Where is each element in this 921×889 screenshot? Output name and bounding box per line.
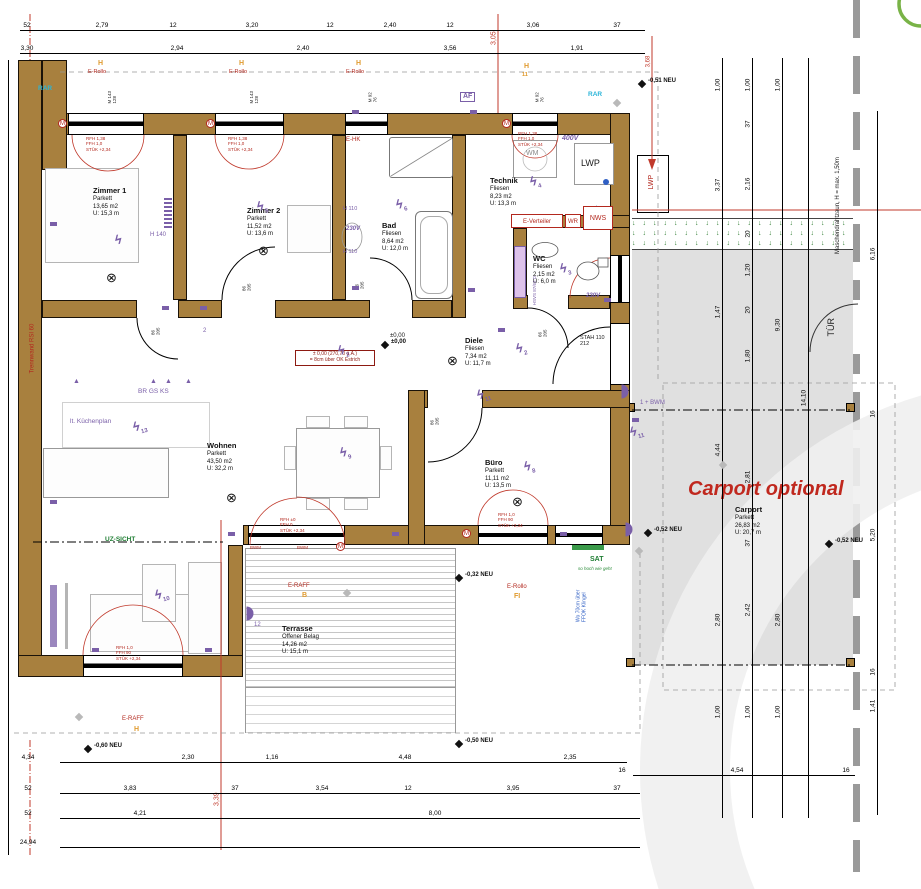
annotation-wo-70cm-ber-ffok-klingel: Wo 70cm über FFOK Klingel [576, 590, 588, 622]
room-name: Büro [485, 458, 511, 468]
annotation-2: 2 [203, 328, 206, 335]
room-name: Diele [465, 336, 491, 346]
level-value: -0,32 NEU [465, 572, 493, 578]
dim-label: 16 [870, 668, 877, 675]
dim-label: 37 [613, 785, 620, 792]
annotation-m: M [336, 542, 345, 551]
dim-label: 3,06 [527, 22, 540, 29]
ceiling-light-icon: ⊗ [258, 243, 269, 259]
annotation-rfh-0-ffh-0-st-k-2-34: RFH ±0 FFH 0 STÜK +2,34 [280, 517, 305, 533]
annotation-3-68: 3,68 [645, 56, 652, 68]
annotation-br-gs-ks: BR GS KS [138, 388, 169, 396]
annotation-m-143-128: M 143 128 [107, 91, 118, 104]
room-label: BüroParkett 11,11 m2 U: 13,5 m [485, 458, 511, 491]
dim-label: 12 [169, 22, 176, 29]
socket-icon [228, 532, 235, 536]
dim-label: 12 [326, 22, 333, 29]
dim-label: 1,91 [571, 45, 584, 52]
dim-label: 24,94 [20, 839, 36, 846]
dim-label: 3,54 [316, 785, 329, 792]
dim-label: 2,40 [384, 22, 397, 29]
dim-label: 3,83 [124, 785, 137, 792]
ceiling-light-icon: ⊗ [226, 490, 237, 506]
dim-line [782, 58, 783, 818]
ceiling-device-icon: ▲ [73, 378, 80, 385]
annotation--0-00-270-70-a-8cm-ber-o: ± 0,00 (270,70 ü.A.) = 8cm über OK Estri… [295, 350, 375, 366]
annotation-h: H [134, 726, 139, 734]
ceiling-light-icon: ⊗ [106, 270, 117, 286]
dim-label: 20 [745, 230, 752, 237]
dim-label: 16 [842, 767, 849, 774]
dim-label: 2,42 [745, 604, 752, 617]
dim-label: 12 [404, 785, 411, 792]
annotation-rar: RAR [38, 85, 52, 93]
annotation-e-raff: E-RAFF [122, 716, 144, 723]
logo-arc [899, 0, 921, 26]
dim-line [752, 58, 753, 818]
socket-icon [92, 648, 99, 652]
annotation-230v: 230V [346, 226, 360, 233]
level-value: -0,50 NEU [465, 738, 493, 744]
annotation-rfh-1-38-ffh-1-0-st-k-2-: RFH 1,38 FFH 1,0 STÜK +2,34 [228, 136, 253, 152]
dim-label: 6,16 [870, 248, 877, 261]
annotation-h: H [98, 60, 103, 68]
socket-icon [632, 418, 639, 422]
socket-icon [200, 306, 207, 310]
annotation-e-rollo: E-Rollo [346, 69, 364, 75]
dim-label: 3,95 [507, 785, 520, 792]
ceiling-device-icon: ▲ [185, 378, 192, 385]
door-arc-zimmer1 [137, 318, 178, 359]
dim-label: 2,81 [745, 471, 752, 484]
socket-icon [50, 222, 57, 226]
room-label: DieleFliesen 7,34 m2 U: 11,7 m [465, 336, 491, 369]
level-value: -0,51 NEU [648, 78, 676, 84]
dim-label: 52 [24, 785, 31, 792]
room-label: TerrasseOffener Belag 14,26 m2 U: 15,1 m [282, 624, 319, 657]
dim-label: 20 [745, 306, 752, 313]
dim-label: 4,44 [715, 444, 722, 457]
annotation-af: AF [460, 92, 475, 102]
annotation-400v: 400V [562, 135, 578, 143]
annotation-e-hk: E-HK [346, 137, 360, 144]
dim-label: 1,80 [745, 350, 752, 363]
dim-label: 4,34 [22, 754, 35, 761]
annotation-m-92-76: M 92 76 [368, 92, 379, 102]
ceiling-device-icon: ▲ [150, 378, 157, 385]
dim-label: 1,47 [715, 306, 722, 319]
annotation-bwm: BWM [297, 545, 308, 550]
annotation-e-verteiler: E-Verteiler [511, 214, 563, 228]
dim-label: 1,20 [745, 264, 752, 277]
annotation-wm: WM [526, 150, 538, 158]
annotation-3-39: 3,39 [214, 792, 222, 806]
dim-label: 5,20 [870, 529, 877, 542]
dim-label: 1,00 [715, 79, 722, 92]
socket-icon [604, 298, 611, 302]
annotation-uz-sicht: UZ-SICHT [105, 536, 135, 544]
dim-label: 14,10 [801, 390, 808, 406]
ceiling-light-icon: ⊗ [512, 494, 523, 510]
dim-label: 52 [24, 810, 31, 817]
dim-label: 16 [618, 767, 625, 774]
dim-label: 37 [745, 120, 752, 127]
annotation-fi: FI [514, 593, 520, 601]
door-arc-wc [528, 308, 568, 348]
room-label: Zimmer 1Parkett 13,65 m2 U: 15,3 m [93, 186, 126, 219]
dim-label: 3,56 [444, 45, 457, 52]
door-arc-bad [370, 258, 412, 300]
dim-label: 9,30 [775, 319, 782, 332]
dim-label: 2,16 [745, 178, 752, 191]
room-name: Technik [490, 176, 518, 186]
dim-label: 1,00 [775, 79, 782, 92]
annotation-66-205: 66 205 [537, 330, 548, 338]
annotation-hsvs-87-63-d: HSVS 87/63 D [532, 276, 537, 305]
dim-line [20, 53, 645, 54]
level-value: -0,60 NEU [94, 743, 122, 749]
dim-label: 2,40 [297, 45, 310, 52]
annotation-e-rollo: E-Rollo [507, 584, 527, 591]
room-name: WC [533, 254, 556, 264]
room-name: Zimmer 1 [93, 186, 126, 196]
annotation-h-110: H 110 [343, 249, 357, 255]
room-label: BadFliesen 8,64 m2 U: 12,0 m [382, 221, 408, 254]
dim-label: 52 [23, 22, 30, 29]
dim-label: 16 [870, 410, 877, 417]
dim-line [808, 58, 809, 818]
annotation-e-rollo: E-Rollo [88, 69, 106, 75]
room-label: TechnikFliesen 8,23 m2 U: 13,3 m [490, 176, 518, 209]
annotation-maschendrahtzaun-h-max-1: Maschendrahtzaun, H = max. 1,50m [835, 157, 842, 254]
dim-label: 37 [745, 539, 752, 546]
socket-icon [468, 288, 475, 292]
dim-label: 1,00 [715, 706, 722, 719]
annotation-stah-110-212: STAH 110 212 [580, 335, 605, 348]
annotation-b: B [302, 592, 307, 600]
annotation-rfh-1-38-ffh-1-0-st-k-2-: RFH 1,38 FFH 1,0 STÜK +2,34 [518, 131, 543, 147]
annotation-12: 12 [254, 622, 261, 629]
dim-label: 3,30 [21, 45, 34, 52]
annotation-86-205: 86 205 [241, 284, 252, 292]
dim-label: 2,79 [96, 22, 109, 29]
room-name: Carport [735, 505, 762, 515]
dim-label: 2,35 [564, 754, 577, 761]
dim-line [60, 793, 640, 794]
annotation-e-rollo: E-Rollo [229, 69, 247, 75]
annotation-m: M [502, 119, 511, 128]
annotation-bwm: BWM [250, 545, 261, 550]
annotation-e-raff: E-RAFF [288, 583, 310, 590]
annotation-h-140: H 140 [150, 232, 166, 239]
ceiling-device-icon: ▲ [165, 378, 172, 385]
dim-label: 4,54 [731, 767, 744, 774]
floor-plan-canvas: ↓↓↓↓↓↓↓↓↓↓↓↓↓↓↓↓↓↓↓↓↓↓↓↓↓↓ ↓↓↓↓↓↓↓↓↓↓↓↓↓… [0, 0, 921, 889]
annotation-so-hoch-wie-geht: so hoch wie geht [578, 566, 612, 571]
dim-label: 2,94 [171, 45, 184, 52]
room-label: CarportParkett 26,83 m2 U: 20,7 m [735, 505, 762, 538]
dim-line [633, 775, 855, 776]
room-name: Wohnen [207, 441, 236, 451]
annotation-nws: NWS [583, 206, 613, 230]
annotation-rfh-1-38-ffh-1-0-st-k-2-: RFH 1,38 FFH 1,0 STÜK +2,34 [86, 136, 111, 152]
annotation-86-205: 86 205 [429, 418, 440, 426]
annotation-lwp: LWP [648, 175, 656, 190]
annotation-m: M [206, 119, 215, 128]
socket-icon [470, 110, 477, 114]
socket-icon [352, 110, 359, 114]
socket-icon [498, 328, 505, 332]
annotation-h: H [524, 63, 529, 71]
socket-icon [392, 532, 399, 536]
annotation-3-05: 3,05 [491, 31, 499, 45]
annotation-t-r: TÜR [826, 318, 837, 337]
dim-label: 3,20 [246, 22, 259, 29]
dim-label: 2,30 [182, 754, 195, 761]
dim-label: 3,37 [715, 179, 722, 192]
dim-label: 12 [446, 22, 453, 29]
annotation-86-205: 86 205 [150, 328, 161, 336]
annotation-m-143-128: M 143 128 [249, 91, 260, 104]
dim-line [20, 30, 645, 31]
dim-line [60, 847, 640, 848]
dim-label: 4,21 [134, 810, 147, 817]
annotation-m-92-76: M 92 76 [535, 92, 546, 102]
annotation-carport-optional: Carport optional [688, 478, 844, 502]
dim-label: 1,00 [745, 79, 752, 92]
level-value: ±0,00 [391, 339, 406, 345]
room-name: Bad [382, 221, 408, 231]
socket-icon [352, 286, 359, 290]
annotation-h: H [356, 60, 361, 68]
dim-label: 2,80 [715, 614, 722, 627]
dim-label: 1,41 [870, 700, 877, 713]
annotation-wr: WR [565, 214, 581, 228]
annotation-11: 11 [522, 72, 528, 78]
ceiling-light-icon: ⊗ [447, 353, 458, 369]
annotation-lwp: LWP [581, 158, 600, 169]
dim-label: 1,00 [775, 706, 782, 719]
socket-icon [205, 648, 212, 652]
annotation-h-110: H 110 [343, 206, 357, 212]
level-value: -0,52 NEU [654, 527, 682, 533]
dim-label: 2,80 [775, 614, 782, 627]
dim-line [60, 762, 627, 763]
dim-line [877, 111, 878, 815]
dim-label: 37 [231, 785, 238, 792]
annotation-rar: RAR [588, 91, 602, 99]
room-name: Terrasse [282, 624, 319, 634]
socket-icon [162, 306, 169, 310]
socket-icon [560, 532, 567, 536]
level-value: -0,52 NEU [835, 538, 863, 544]
dim-label: 1,00 [745, 706, 752, 719]
annotation-m: M [462, 529, 471, 538]
dim-line [60, 818, 640, 819]
annotation-sat: SAT [590, 556, 603, 564]
annotation-230v: 230V [586, 293, 600, 300]
dim-line [722, 58, 723, 818]
room-label: WohnenParkett 43,50 m2 U: 32,2 m [207, 441, 236, 474]
dim-label: 4,48 [399, 754, 412, 761]
dim-label: 1,16 [266, 754, 279, 761]
annotation-m: M [58, 119, 67, 128]
dim-label: 37 [613, 22, 620, 29]
annotation-trennwand-rsi-60: Trennwand RSI 60 [29, 324, 36, 374]
socket-icon [50, 500, 57, 504]
annotation-rfh-1-0-ffh-90-st-k-2-34: RFH 1,0 FFH 90 STÜK +2,34 [498, 512, 523, 528]
dim-line [8, 60, 9, 855]
annotation-lt-k-chenplan: lt. Küchenplan [70, 418, 111, 426]
annotation-h: H [239, 60, 244, 68]
annotation-1-bwm: 1 + BWM [640, 400, 665, 407]
annotation-rfh-1-0-ffh-90-st-k-2-34: RFH 1,0 FFH 90 STÜK +2,34 [116, 645, 141, 661]
dim-label: 8,00 [429, 810, 442, 817]
